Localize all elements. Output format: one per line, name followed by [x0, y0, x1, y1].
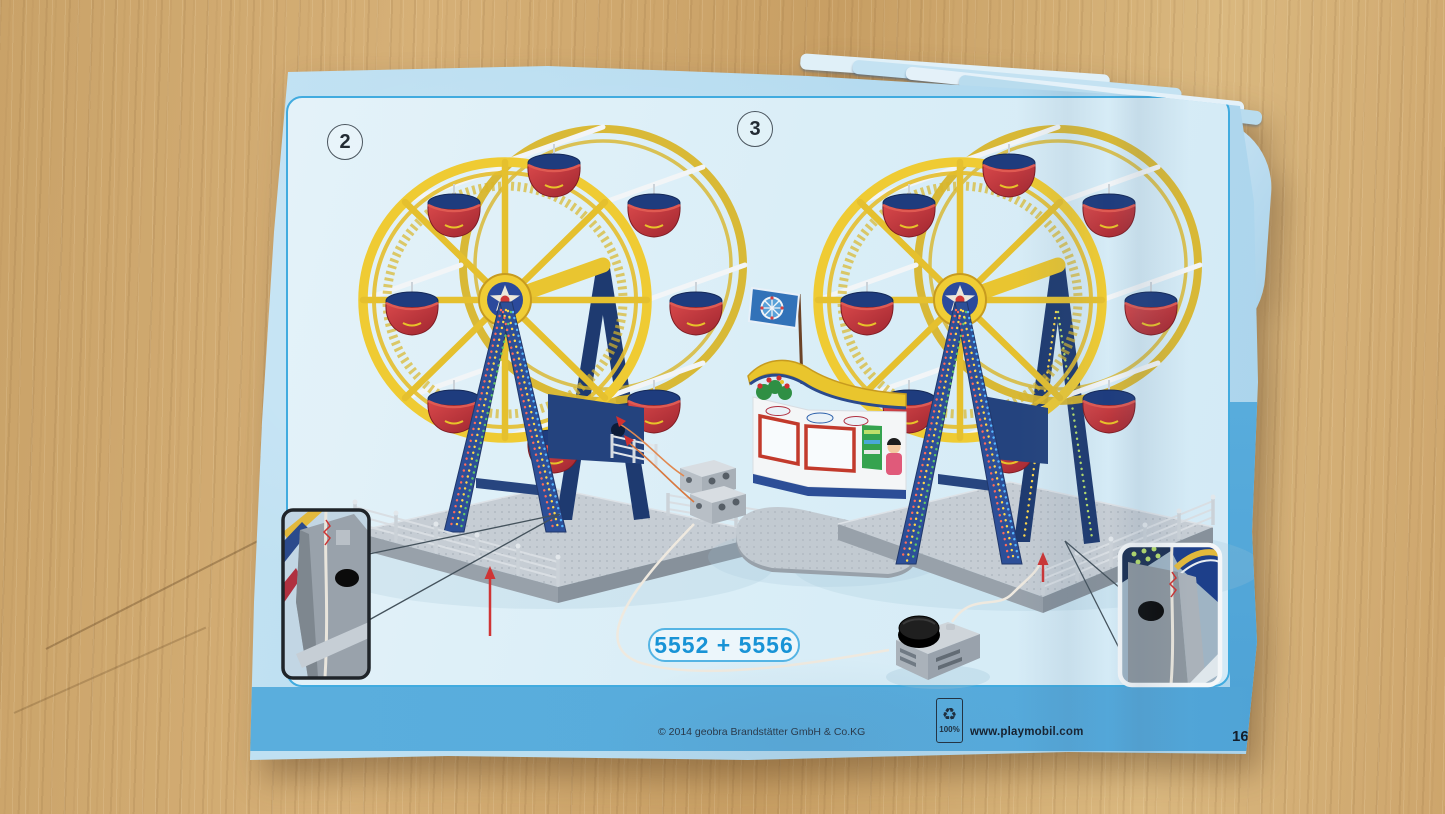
cable-detail	[1171, 545, 1173, 685]
flag	[749, 288, 799, 328]
website-url: www.playmobil.com	[970, 726, 1084, 738]
booth-window	[806, 426, 854, 471]
instruction-leaflet: 2 3 5552 + 5556 © 2014 geobra Brandstätt…	[0, 0, 1445, 814]
ferris-wheel-step2	[323, 127, 773, 609]
wood-table: 2 3 5552 + 5556 © 2014 geobra Brandstätt…	[0, 0, 1445, 814]
cable-hole-detail	[335, 569, 359, 587]
detail-inset-right	[1120, 545, 1220, 685]
page-number: 16	[1232, 728, 1249, 745]
copyright-line: © 2014 geobra Brandstätter GmbH & Co.KG	[658, 726, 865, 739]
battery-box	[886, 616, 990, 689]
step-number-3: 3	[737, 111, 773, 147]
copyright-line: Brandstätterstr. 2-10	[658, 765, 865, 778]
connector-block	[680, 460, 746, 524]
step-label: 2	[339, 131, 350, 154]
manual-page: 2 3 5552 + 5556 © 2014 geobra Brandstätt…	[248, 62, 1260, 762]
vendor-figure	[886, 438, 902, 475]
copyright-line: 90513 Zirndorf, Germany.	[658, 804, 865, 814]
copyright-block: © 2014 geobra Brandstätter GmbH & Co.KG …	[658, 700, 865, 814]
recycle-percentage: 100%	[939, 725, 959, 734]
recycle-icon: ♻ 100%	[936, 698, 963, 743]
step-number-2: 2	[327, 124, 363, 160]
ferris-wheel-step3	[708, 127, 1260, 613]
cable-hole-detail	[1138, 601, 1164, 621]
recycle-symbol: ♻	[942, 707, 957, 724]
step-label: 3	[749, 118, 760, 141]
booth-window	[760, 416, 798, 464]
cable-socket	[946, 624, 955, 630]
booth-poster	[862, 425, 882, 470]
detail-inset-left	[283, 510, 369, 678]
product-code-badge: 5552 + 5556	[648, 628, 800, 662]
product-codes: 5552 + 5556	[654, 632, 794, 659]
